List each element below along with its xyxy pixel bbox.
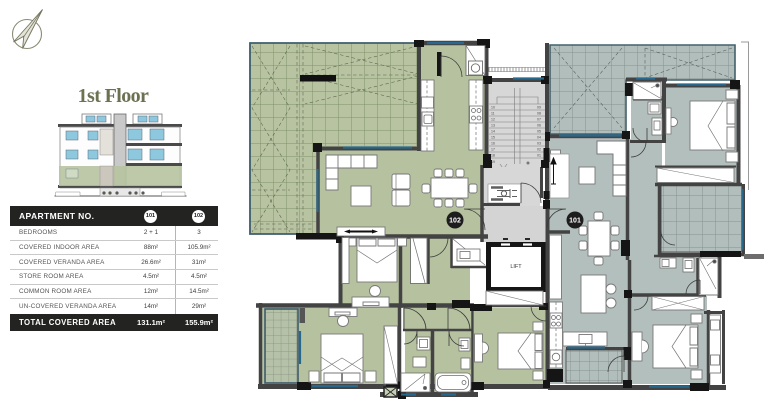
svg-text:16: 16 [491,142,495,146]
svg-text:102: 102 [449,218,461,225]
svg-text:01: 01 [537,154,541,158]
svg-text:14: 14 [491,130,495,134]
svg-text:11: 11 [491,112,495,116]
svg-text:02: 02 [537,148,541,152]
svg-text:08: 08 [537,112,541,116]
svg-text:101: 101 [569,218,581,225]
svg-text:LIFT: LIFT [510,264,522,270]
svg-text:13: 13 [491,124,495,128]
svg-text:04: 04 [537,136,541,140]
svg-text:10: 10 [491,106,495,110]
svg-text:05: 05 [537,130,541,134]
svg-text:12: 12 [491,118,495,122]
svg-text:15: 15 [491,136,495,140]
svg-text:07: 07 [537,118,541,122]
svg-text:18: 18 [491,154,495,158]
svg-text:09: 09 [537,106,541,110]
svg-text:03: 03 [537,142,541,146]
svg-text:17: 17 [491,148,495,152]
svg-text:06: 06 [537,124,541,128]
